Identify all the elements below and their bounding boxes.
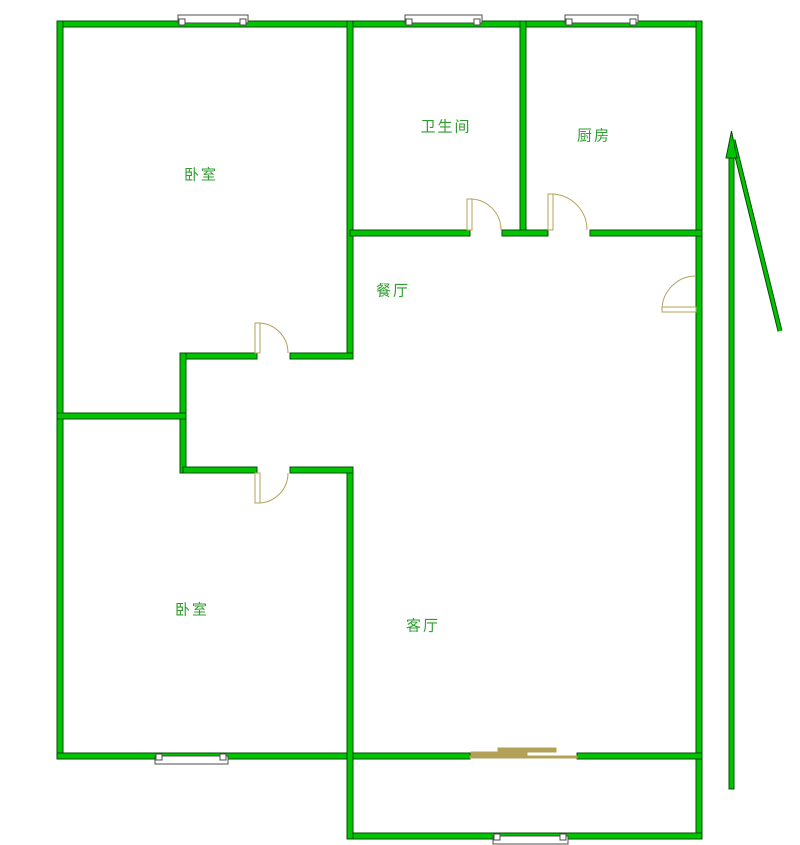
- wall-segment: [183, 467, 257, 473]
- wall-segment: [183, 353, 257, 359]
- window-symbol: [405, 15, 482, 23]
- door-bedroom-top-arc: [258, 323, 288, 353]
- wall-segment: [350, 230, 470, 236]
- wall-segment: [290, 353, 353, 359]
- window-post: [560, 834, 566, 840]
- window-post: [474, 19, 480, 25]
- wall-segment: [520, 21, 526, 236]
- door-bathroom-leaf: [467, 199, 472, 230]
- window-post: [220, 754, 226, 760]
- sliding-door-panel: [498, 748, 556, 752]
- window-symbol: [155, 756, 228, 764]
- north-arrow-shaft: [729, 152, 734, 789]
- sliding-door-panel: [471, 752, 527, 756]
- door-bedroom-bottom-leaf: [255, 473, 260, 503]
- door-entrance-arc: [662, 276, 696, 310]
- wall-segment: [502, 230, 548, 236]
- wall-segment: [57, 413, 186, 419]
- door-kitchen-leaf: [548, 194, 553, 230]
- room-label-bathroom: 卫生间: [420, 116, 471, 137]
- north-arrow-tail: [733, 140, 780, 331]
- wall-segment: [347, 467, 353, 839]
- window-post: [156, 754, 162, 760]
- window-post: [494, 834, 500, 840]
- wall-segment: [696, 21, 702, 839]
- wall-segment: [57, 21, 63, 759]
- room-label-dining: 餐厅: [376, 280, 410, 301]
- window-post: [240, 19, 246, 25]
- floor-plan: 卧室 卫生间 厨房 餐厅 卧室 客厅: [0, 0, 800, 845]
- room-label-living: 客厅: [406, 615, 440, 636]
- window-post: [406, 19, 412, 25]
- floor-plan-canvas: [0, 0, 800, 845]
- window-post: [630, 19, 636, 25]
- window-symbol: [178, 15, 248, 23]
- room-label-kitchen: 厨房: [577, 125, 611, 146]
- room-label-bedroom-bottom: 卧室: [175, 599, 209, 620]
- room-label-bedroom-top: 卧室: [184, 164, 218, 185]
- wall-segment: [347, 21, 353, 359]
- wall-segment: [577, 753, 702, 759]
- door-kitchen-arc: [551, 194, 587, 230]
- wall-segment: [290, 467, 353, 473]
- window-post: [179, 19, 185, 25]
- door-entrance-leaf: [662, 307, 696, 312]
- wall-segment: [350, 753, 470, 759]
- door-bathroom-arc: [470, 199, 501, 230]
- wall-segment: [590, 230, 702, 236]
- door-bedroom-top-leaf: [255, 323, 260, 353]
- window-symbol: [565, 15, 638, 23]
- door-bedroom-bottom-arc: [258, 473, 288, 503]
- window-post: [566, 19, 572, 25]
- window-symbol: [493, 836, 568, 844]
